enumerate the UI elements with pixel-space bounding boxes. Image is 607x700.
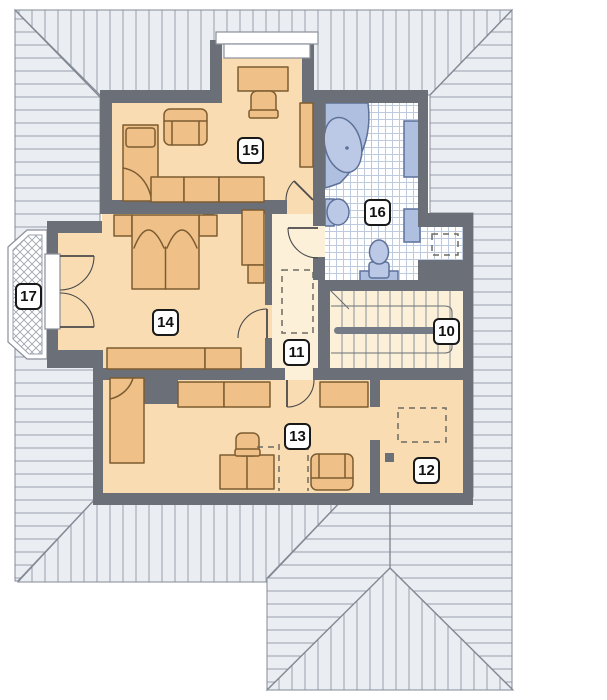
pillow-room15 <box>126 128 155 147</box>
nightstand-left <box>114 215 132 236</box>
sofa-room15-c <box>219 177 264 202</box>
cabinet-room13 <box>320 382 368 407</box>
wardrobe-room14 <box>242 210 264 265</box>
room-label-15: 15 <box>237 137 264 164</box>
nightstand-right <box>199 215 217 236</box>
sofa-room15-a <box>151 177 184 202</box>
chair-back-room13 <box>235 449 260 456</box>
desk-room15 <box>238 67 288 91</box>
room-label-12: 12 <box>413 457 440 484</box>
bed-room13 <box>110 378 144 463</box>
toilet-bowl <box>370 240 389 264</box>
room-label-11: 11 <box>283 339 310 366</box>
dresser-room14-a <box>107 348 205 369</box>
dormer-window-sill <box>216 32 318 44</box>
wardrobe-room15 <box>300 103 313 167</box>
armchair-room13 <box>311 454 353 490</box>
sofa-room13-a <box>178 382 224 407</box>
balcony-door-threshold <box>45 254 60 329</box>
duct-block <box>385 453 394 462</box>
room-13-12-opening <box>370 407 380 440</box>
room-label-10: 10 <box>433 318 460 345</box>
room-label-14: 14 <box>152 309 179 336</box>
sofa-room15-b <box>184 177 219 202</box>
bathtub-drain <box>345 146 349 150</box>
floor-plan: 10 11 12 13 14 15 16 17 <box>0 0 607 700</box>
armchair-room15 <box>164 109 207 145</box>
cabinet-room14 <box>248 265 264 283</box>
dormer-window <box>224 44 310 58</box>
room-label-17: 17 <box>15 283 42 310</box>
room-label-16: 16 <box>364 199 391 226</box>
chair-back-room15 <box>249 110 278 118</box>
bathroom-cabinet <box>404 121 420 177</box>
bathroom-shelf <box>404 209 420 242</box>
room-label-13: 13 <box>284 423 311 450</box>
sofa-room13-b <box>224 382 270 407</box>
dresser-room14-b <box>205 348 241 369</box>
washbasin <box>327 199 349 225</box>
